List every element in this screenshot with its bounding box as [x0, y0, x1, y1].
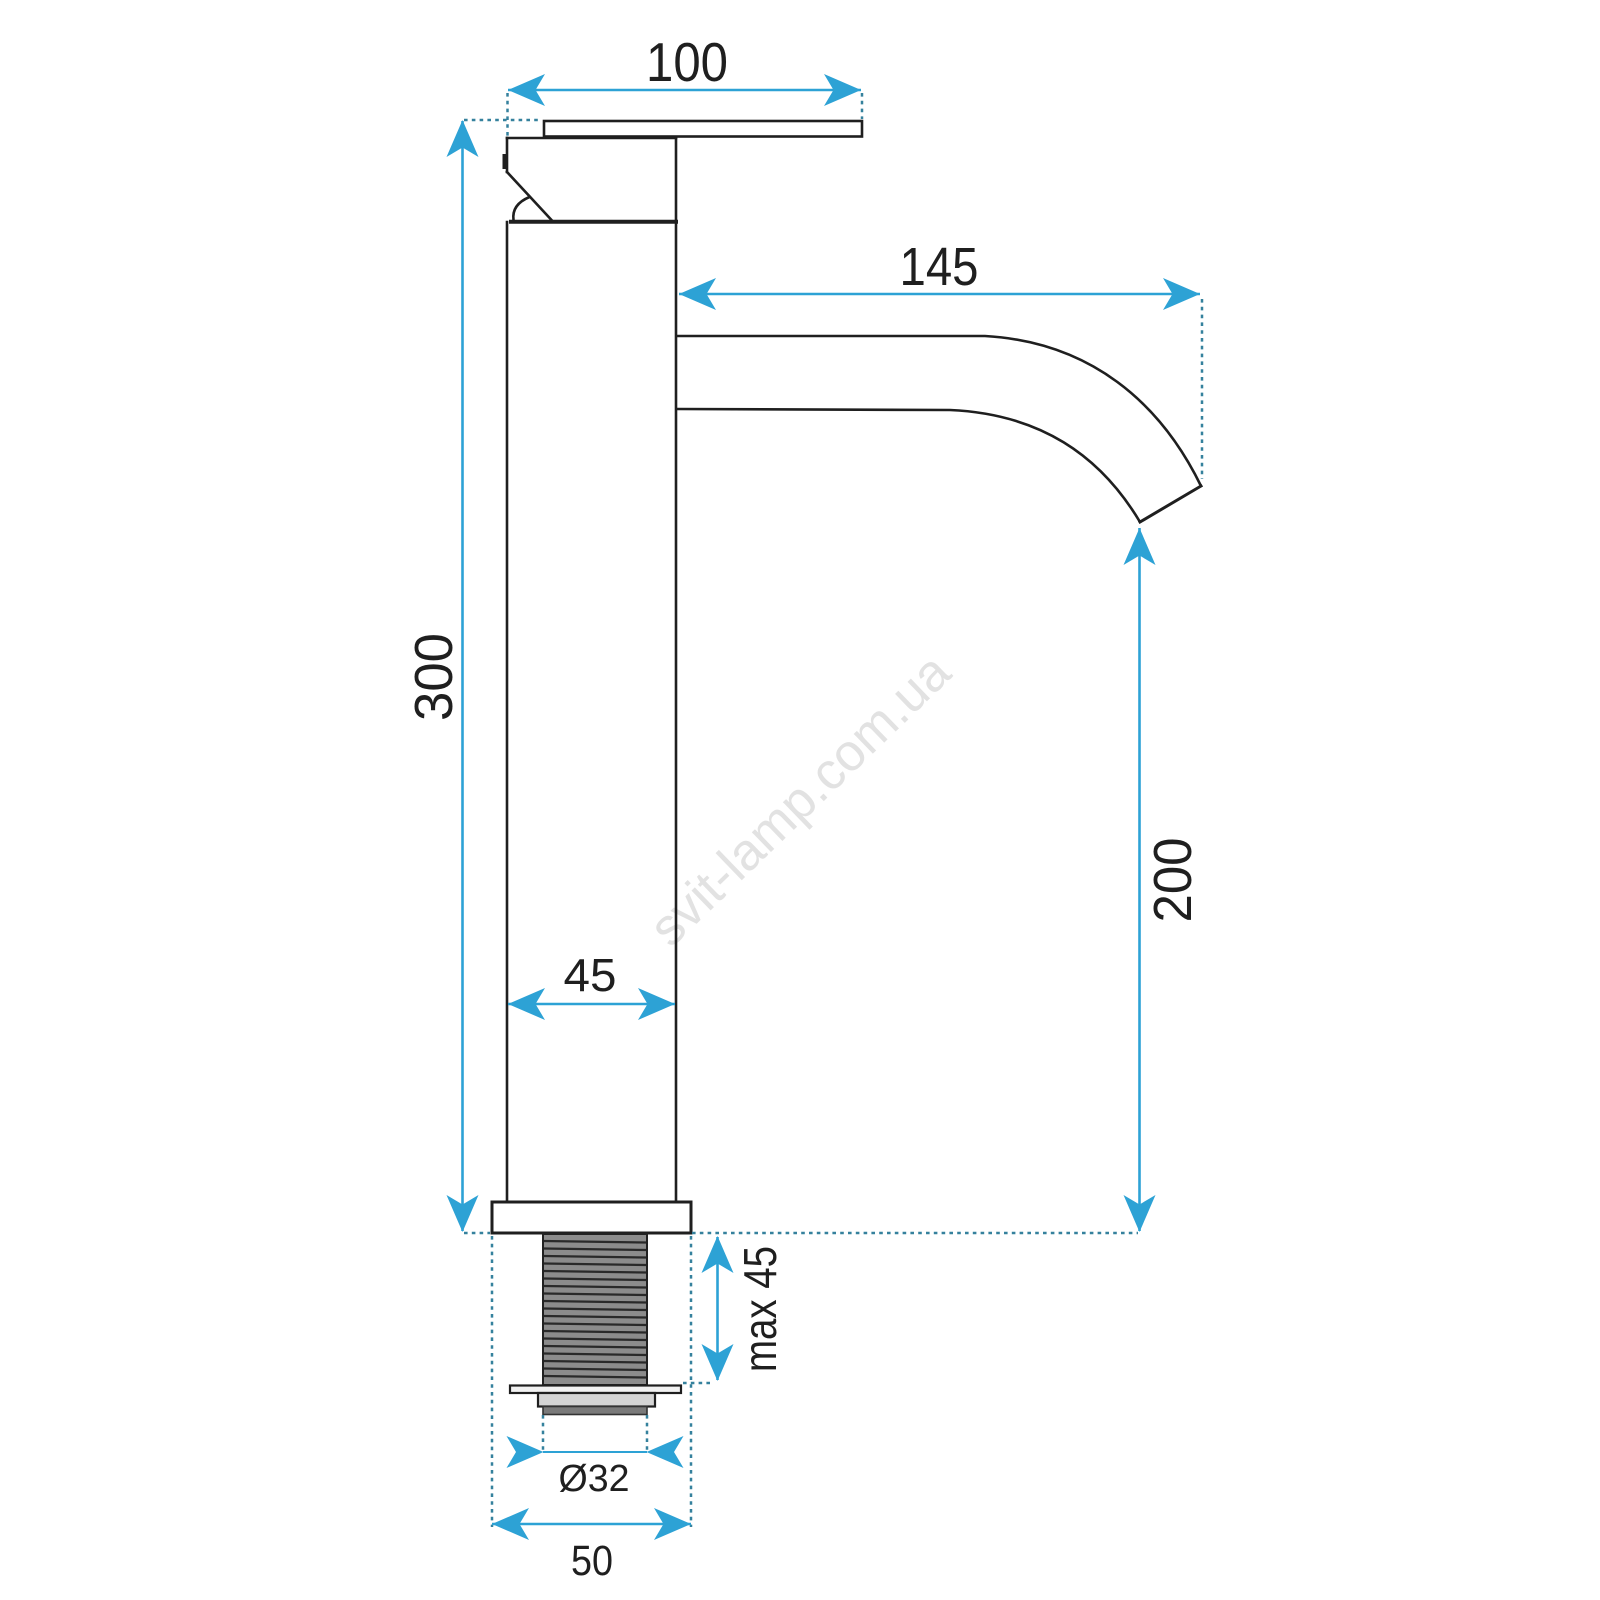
svg-text:145: 145: [900, 237, 979, 297]
svg-text:100: 100: [646, 31, 728, 93]
svg-text:max 45: max 45: [734, 1246, 786, 1372]
svg-text:200: 200: [1143, 838, 1203, 923]
svg-text:Ø32: Ø32: [559, 1458, 630, 1500]
svg-text:300: 300: [404, 633, 464, 721]
svg-text:50: 50: [571, 1537, 613, 1585]
svg-text:45: 45: [564, 949, 617, 1001]
